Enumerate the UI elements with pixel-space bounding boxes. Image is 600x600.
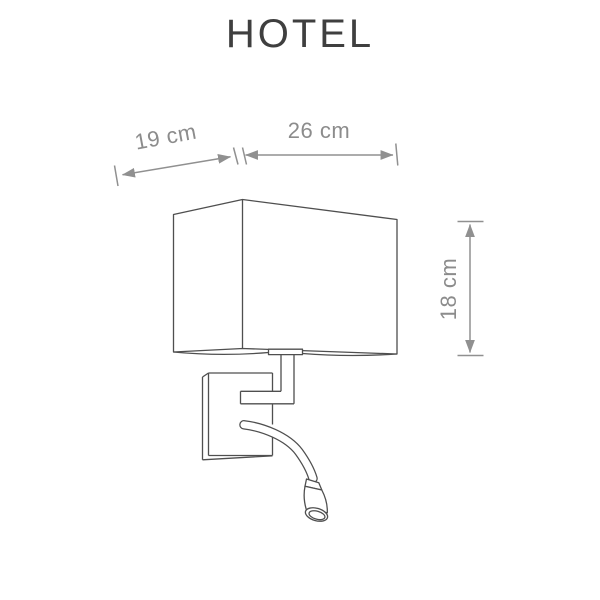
led-reading-head <box>304 479 329 524</box>
dimension-depth: 19 cm <box>115 119 239 186</box>
lamp-drawing <box>174 200 398 524</box>
lamp-dimension-diagram: 19 cm 26 cm 18 cm <box>0 0 600 600</box>
width-tick-right <box>396 144 398 166</box>
depth-arrow <box>123 157 231 175</box>
shade-outline <box>174 200 398 355</box>
dimension-height-label: 18 cm <box>436 258 461 320</box>
dimension-drawing-page: HOTEL <box>0 0 600 600</box>
lamp-shade <box>174 200 398 356</box>
dimension-height: 18 cm <box>436 222 484 356</box>
shade-mount-bar <box>269 349 303 354</box>
depth-tick-left <box>115 166 119 187</box>
bracket-body <box>203 373 273 460</box>
wall-bracket <box>203 373 273 460</box>
dimension-width-label: 26 cm <box>288 118 350 143</box>
width-tick-left <box>243 148 247 165</box>
dimension-width: 26 cm <box>243 118 398 166</box>
depth-tick-right <box>234 148 239 165</box>
shade-bottom-rim-left <box>174 352 269 354</box>
dimension-depth-label: 19 cm <box>133 119 199 155</box>
